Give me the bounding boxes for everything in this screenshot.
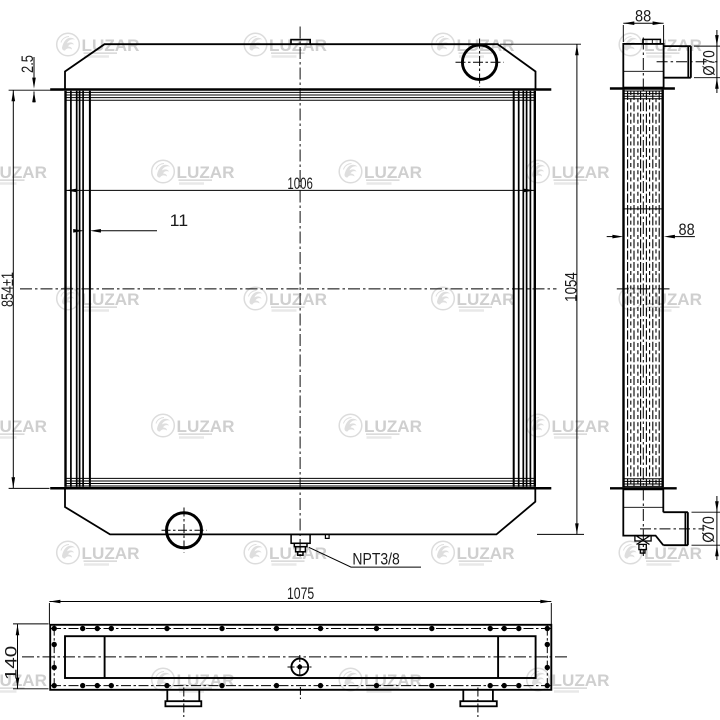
svg-text:1006: 1006 xyxy=(287,175,313,193)
svg-text:140: 140 xyxy=(2,646,20,680)
svg-text:11: 11 xyxy=(170,212,189,230)
svg-text:NPT3/8: NPT3/8 xyxy=(352,550,399,568)
svg-text:Ø70: Ø70 xyxy=(700,516,718,543)
svg-text:1054: 1054 xyxy=(562,272,580,302)
svg-text:Ø70: Ø70 xyxy=(700,50,718,75)
svg-text:88: 88 xyxy=(679,221,695,239)
svg-text:2.5: 2.5 xyxy=(19,55,37,73)
svg-text:88: 88 xyxy=(635,8,651,26)
svg-text:854±1: 854±1 xyxy=(0,272,17,307)
svg-text:1075: 1075 xyxy=(287,585,314,603)
